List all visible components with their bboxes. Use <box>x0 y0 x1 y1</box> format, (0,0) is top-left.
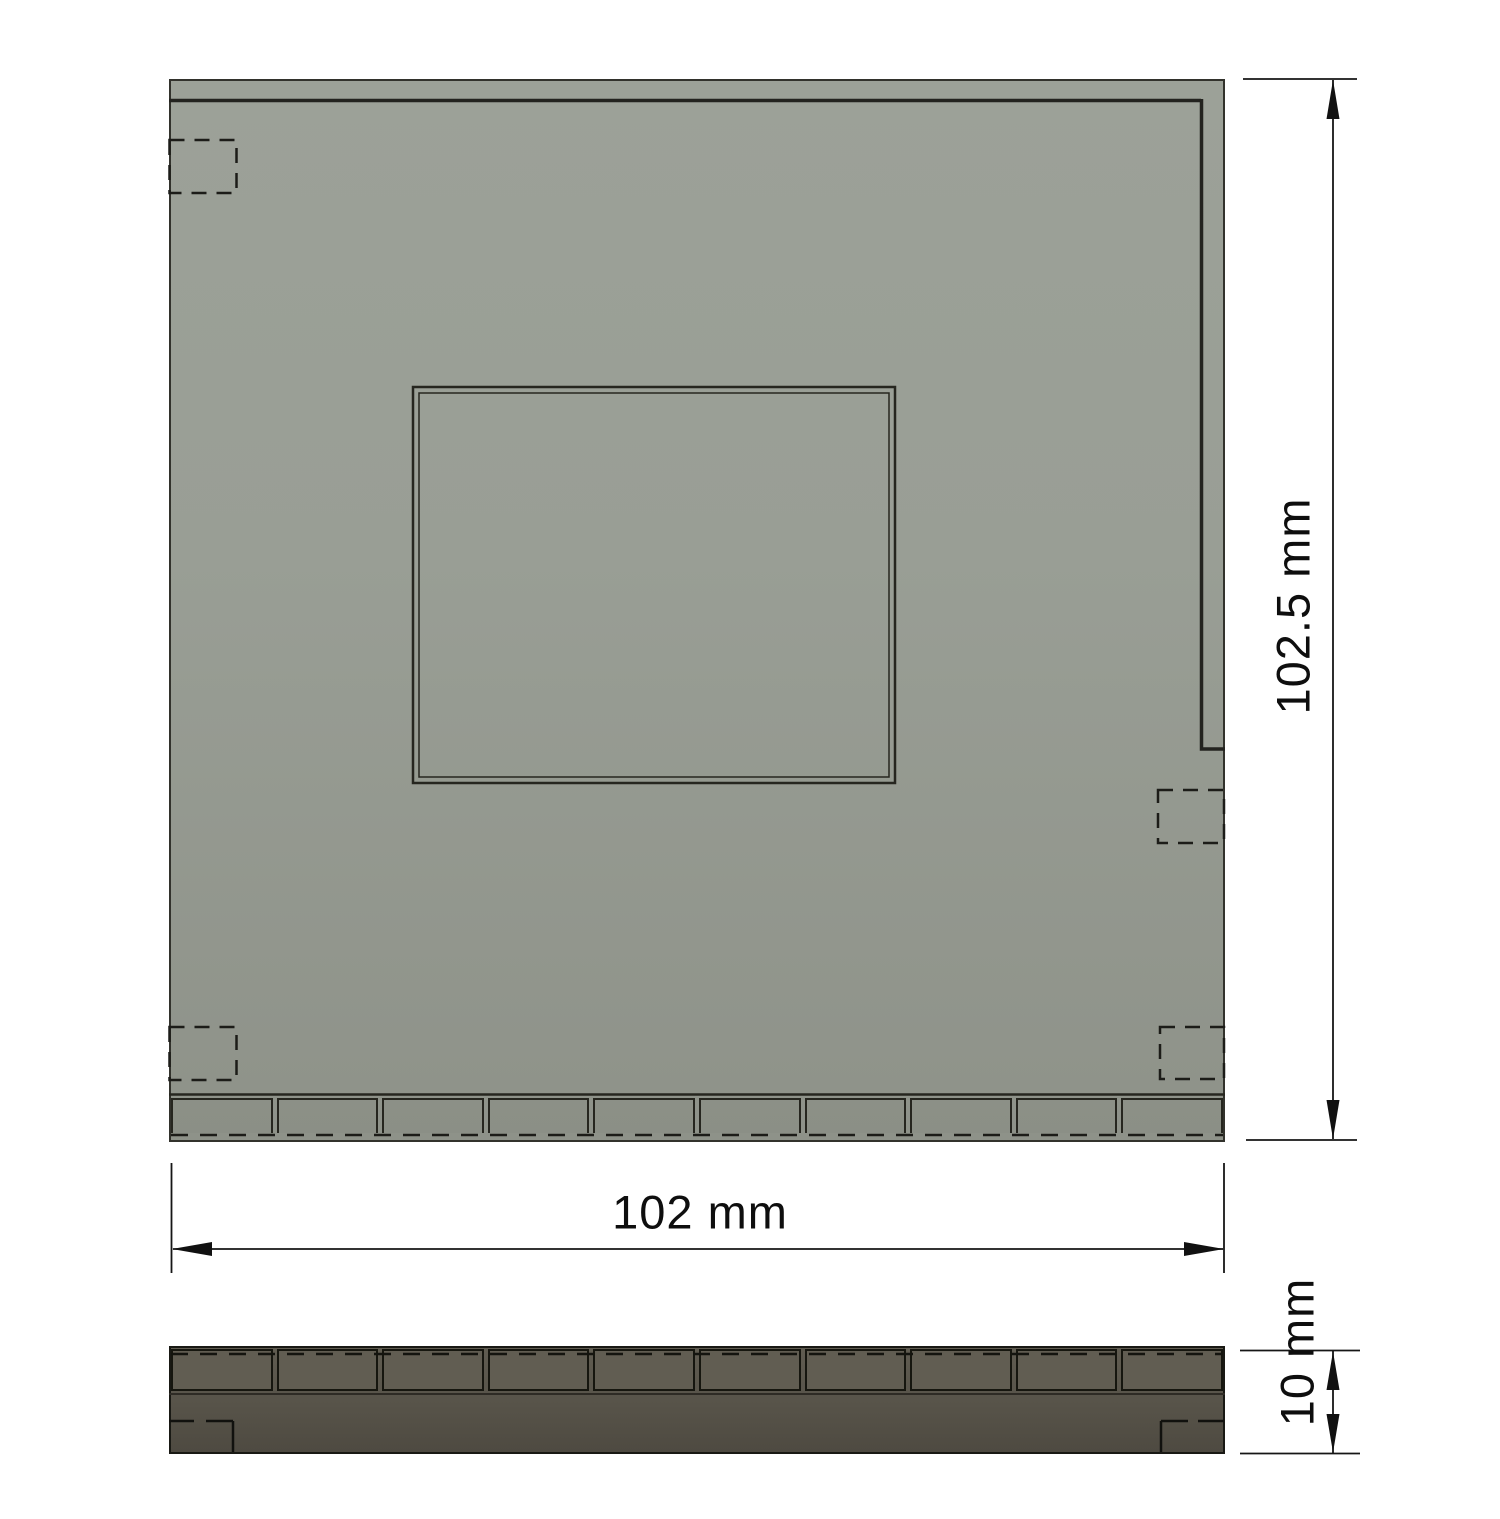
dim-thickness-arrow-up-icon <box>1327 1352 1340 1391</box>
side-tab-strip <box>171 1349 1223 1391</box>
side-tab-segment <box>593 1349 695 1391</box>
plan-tab-segment <box>1016 1098 1118 1133</box>
dim-height-arrow-up-icon <box>1327 80 1340 119</box>
plan-tab-segment <box>805 1098 907 1133</box>
plan-tab-segment <box>171 1098 273 1133</box>
dim-thickness-label: 10 mm <box>1270 1278 1325 1427</box>
plan-tab-segment <box>699 1098 801 1133</box>
plan-tab-segment <box>593 1098 695 1133</box>
dim-thickness-arrow-down-icon <box>1327 1414 1340 1453</box>
plan-tab-segment <box>277 1098 379 1133</box>
dim-width-label: 102 mm <box>612 1185 788 1240</box>
side-tab-segment <box>1121 1349 1223 1391</box>
side-tab-segment <box>805 1349 907 1391</box>
plan-tab-segment <box>382 1098 484 1133</box>
dim-width-arrow-right-icon <box>1184 1242 1224 1256</box>
plan-tab-strip <box>171 1098 1223 1133</box>
side-tab-segment <box>382 1349 484 1391</box>
side-tab-segment <box>171 1349 273 1391</box>
dim-width-arrow-left-icon <box>172 1242 212 1256</box>
plan-tab-segment <box>910 1098 1012 1133</box>
plan-tab-segment <box>488 1098 590 1133</box>
side-tab-segment <box>488 1349 590 1391</box>
plate-top-view <box>169 79 1225 1142</box>
side-tab-segment <box>1016 1349 1118 1391</box>
side-tab-segment <box>277 1349 379 1391</box>
side-tab-segment <box>699 1349 801 1391</box>
side-tab-segment <box>910 1349 1012 1391</box>
dim-height-arrow-down-icon <box>1327 1100 1340 1139</box>
dim-height-label: 102.5 mm <box>1266 498 1321 715</box>
plan-tab-segment <box>1121 1098 1223 1133</box>
